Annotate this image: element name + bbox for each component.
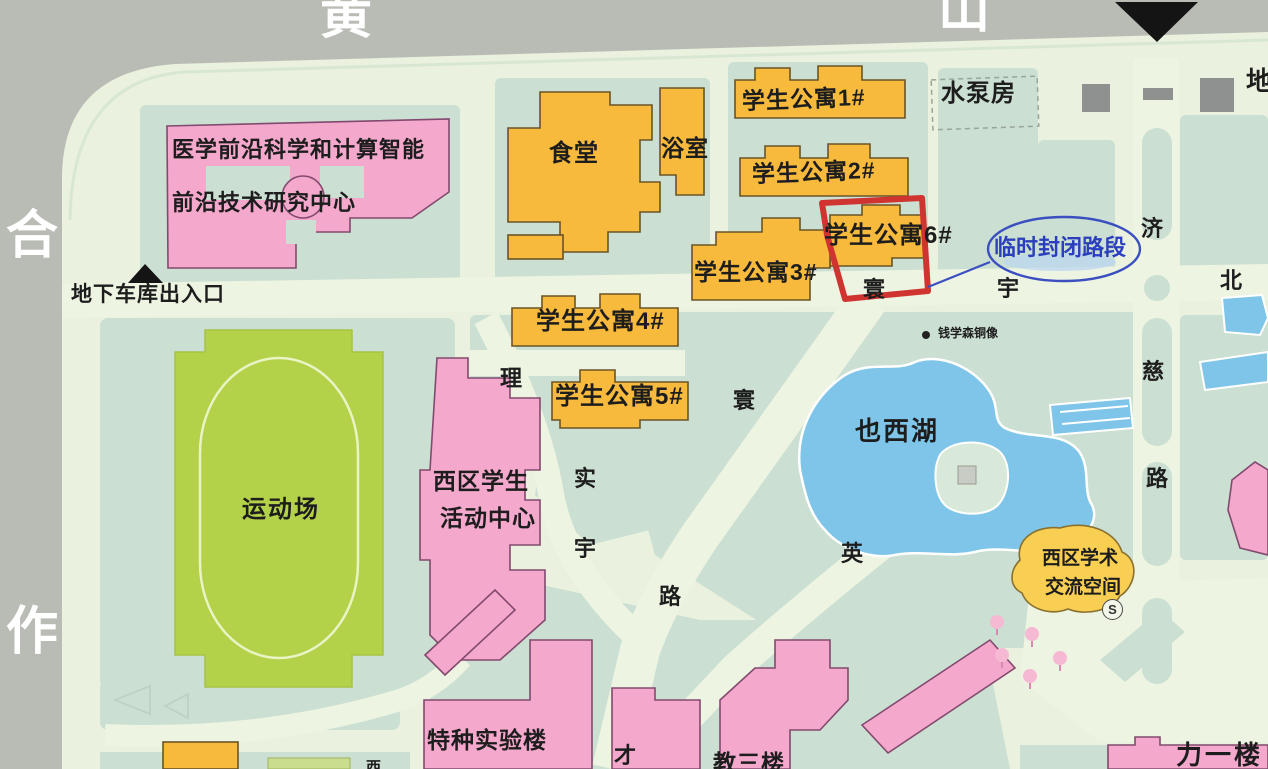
label-closed-road: 临时封闭路段	[994, 237, 1126, 259]
label-sports-field: 运动场	[242, 498, 320, 522]
road-char-huan-diag: 寰	[733, 390, 756, 412]
label-apartment-5: 学生公寓5#	[555, 385, 684, 409]
label-apartment-4: 学生公寓4#	[536, 310, 665, 334]
street-name-left-1: 合	[6, 210, 59, 262]
road-char-ji: 济	[1141, 218, 1164, 240]
label-special-lab: 特种实验楼	[427, 729, 547, 752]
label-apartment-6: 学生公寓6#	[824, 224, 953, 248]
road-char-shi: 实	[574, 468, 597, 490]
road-char-ci: 慈	[1142, 361, 1165, 383]
label-research-center-2: 前沿技术研究中心	[172, 192, 356, 214]
road-char-lu2: 路	[1146, 468, 1169, 490]
road-char-cai: 才	[614, 745, 637, 767]
label-canteen: 食堂	[549, 142, 599, 166]
s-badge: S	[1102, 599, 1123, 620]
building-canteen-annex	[508, 235, 563, 259]
label-academic-space-1: 西区学术	[1042, 549, 1118, 568]
label-research-center-1: 医学前沿科学和计算智能	[172, 139, 425, 161]
campus-map: 黄 山 合 作 医学前沿科学和计算智能 前沿技术研究中心 地下车库出入口 食堂 …	[0, 0, 1268, 769]
road-char-yu: 宇	[574, 538, 597, 560]
label-student-center-1: 西区学生	[433, 470, 529, 493]
statue-dot-icon	[922, 331, 930, 339]
street-name-left-2: 作	[6, 606, 59, 658]
road-char-huan: 寰	[863, 279, 886, 301]
road-char-ying: 英	[841, 543, 864, 565]
label-student-center-2: 活动中心	[440, 507, 536, 530]
label-garage-entrance: 地下车库出入口	[71, 284, 225, 305]
label-pump-house: 水泵房	[941, 82, 1016, 106]
label-xi-partial: 西	[366, 760, 382, 769]
road-char-lu: 路	[659, 586, 682, 608]
island-pavilion	[958, 466, 976, 484]
street-name-top-1: 黄	[320, 0, 373, 42]
building-court-sw	[163, 742, 238, 769]
label-lake: 也西湖	[855, 418, 939, 444]
label-metro-partial: 地	[1246, 68, 1268, 94]
road-char-bei: 北	[1220, 270, 1243, 292]
label-apartment-1: 学生公寓1#	[742, 86, 866, 113]
road-char-li: 理	[500, 368, 523, 390]
label-academic-space-2: 交流空间	[1045, 578, 1121, 597]
label-li-yi: 力一楼	[1176, 742, 1263, 768]
street-name-top-2: 山	[938, 0, 991, 36]
label-statue: 钱学森铜像	[938, 327, 998, 339]
label-bathhouse: 浴室	[661, 137, 709, 160]
label-apartment-2: 学生公寓2#	[752, 159, 876, 186]
label-teaching-3: 教三楼	[713, 752, 785, 769]
road-char-yu2: 宇	[997, 278, 1020, 300]
label-apartment-3: 学生公寓3#	[694, 261, 818, 284]
court-green	[268, 758, 350, 769]
